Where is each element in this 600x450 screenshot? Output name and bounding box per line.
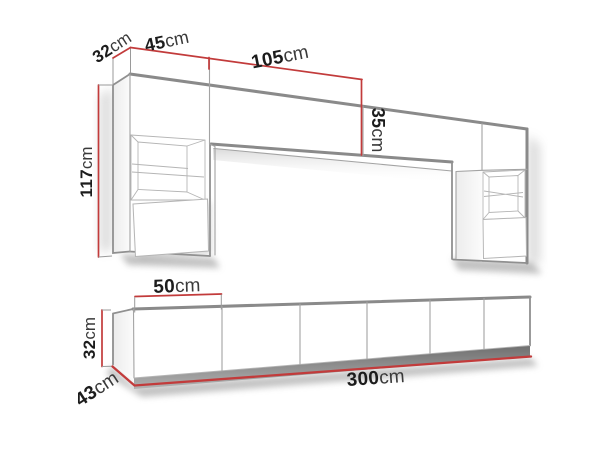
furniture-dimensions-diagram: 32cm 45cm 105cm 35cm 117cm 50cm 32cm 43c… [0,0,600,450]
left-column-side-shadow [100,88,112,252]
label-wall-unit-depth: 32cm [89,28,135,67]
tv-stand-left-end-face [113,309,134,378]
right-door-panel [483,218,527,259]
left-column-door [133,199,212,259]
label-wall-unit-column-height: 117cm [77,147,96,198]
label-wall-unit-cabinet-width: 45cm [143,27,191,56]
right-column-niche [483,170,525,220]
dim-line-45-105 [131,48,363,80]
label-tv-stand-door-width: 50cm [153,275,201,298]
right-column-side-face [456,170,482,262]
dim-ticks-32-stand [102,310,112,367]
right-column-side-shadow [528,135,540,265]
label-tv-stand-height: 32cm [80,317,99,359]
left-column-side-face [113,74,130,253]
left-column-niche [131,135,205,200]
left-door-panel [133,199,209,257]
label-wall-unit-bridge-height: 35cm [368,108,388,153]
label-tv-stand-depth: 43cm [72,368,123,411]
diagram-canvas: 32cm 45cm 105cm 35cm 117cm 50cm 32cm 43c… [0,0,600,450]
tv-stand-front-left-corner [134,309,135,378]
label-tv-stand-total-width: 300cm [346,366,405,391]
wall-unit [113,58,527,263]
